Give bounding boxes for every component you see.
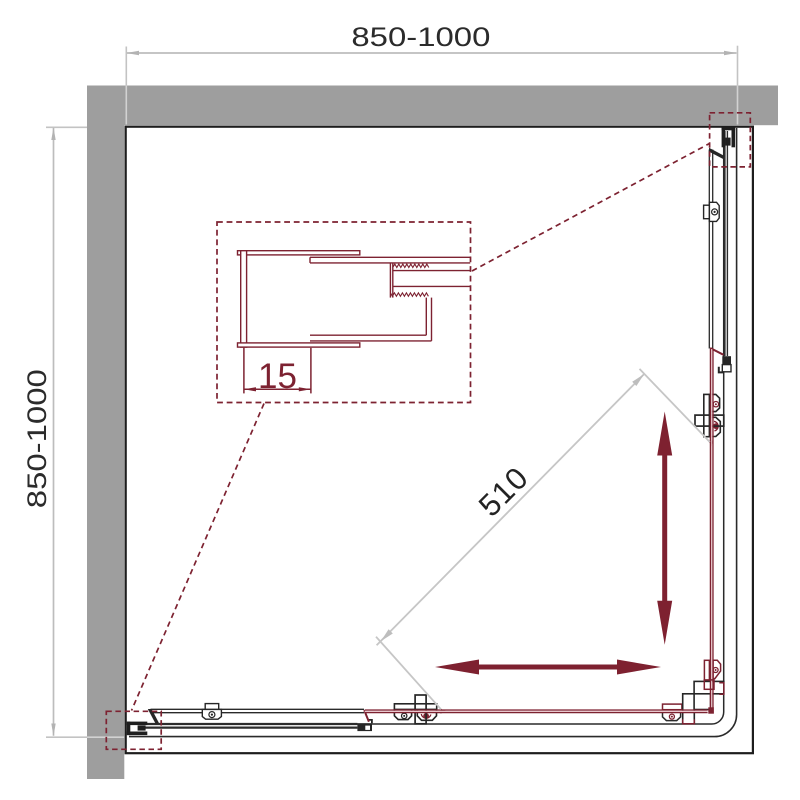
svg-text:850-1000: 850-1000 [22,369,52,508]
svg-text:850-1000: 850-1000 [351,22,490,52]
svg-text:15: 15 [258,357,297,396]
